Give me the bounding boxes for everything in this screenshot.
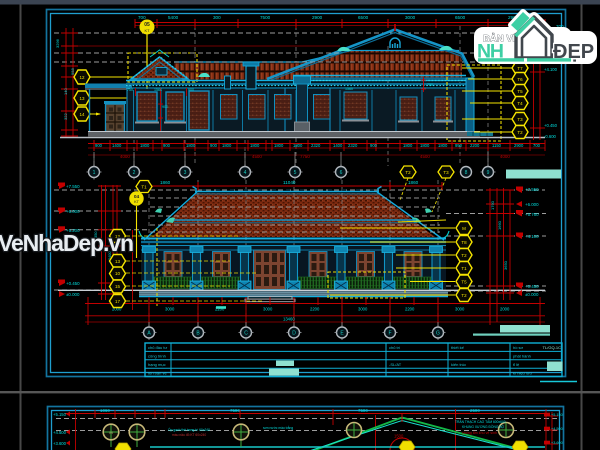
svg-text:2200: 2200 [405,307,415,312]
svg-text:1800: 1800 [403,143,413,148]
svg-text:2: 2 [133,170,136,176]
svg-text:7590: 7590 [358,408,368,413]
svg-text:1800: 1800 [293,143,303,148]
svg-text:màu nâu đỏ KT 60x240: màu nâu đỏ KT 60x240 [172,433,206,437]
svg-text:1790: 1790 [490,200,495,210]
svg-text:-0.600: -0.600 [544,134,557,139]
svg-text:chủ đầu tư: chủ đầu tư [148,345,167,350]
svg-text:15: 15 [115,284,121,289]
svg-text:9: 9 [487,170,490,176]
svg-text:11040: 11040 [283,180,296,185]
svg-text:3000: 3000 [455,307,465,312]
svg-text:2000: 2000 [500,307,510,312]
svg-text:13: 13 [115,259,121,264]
svg-text:5400: 5400 [168,15,179,20]
svg-text:1800: 1800 [274,143,284,148]
svg-text:8: 8 [465,170,468,176]
svg-text:2200: 2200 [310,307,320,312]
svg-text:700: 700 [533,143,541,148]
svg-text:+6.000: +6.000 [525,202,539,207]
svg-text:1800: 1800 [140,143,150,148]
svg-text:-SL/AT: -SL/AT [389,362,402,367]
svg-text:TRẦN THẠCH CAO TẤM 600x600: TRẦN THẠCH CAO TẤM 600x600 [455,420,506,424]
svg-text:1860: 1860 [408,180,419,185]
svg-text:±0.000: ±0.000 [66,292,80,297]
svg-text:6500: 6500 [455,15,466,20]
svg-text:3296: 3296 [55,38,60,48]
svg-text:900: 900 [188,88,194,92]
svg-text:F: F [388,331,391,337]
svg-text:T2: T2 [461,293,467,298]
svg-text:thiết kế: thiết kế [451,345,465,350]
svg-text:+3.600: +3.600 [53,441,67,446]
svg-text:1860: 1860 [160,180,171,185]
svg-text:+5.150: +5.150 [551,413,563,417]
svg-text:2590: 2590 [470,408,480,413]
svg-text:chủ trì: chủ trì [389,345,400,350]
svg-text:1400: 1400 [333,143,343,148]
svg-text:140: 140 [63,88,68,95]
svg-text:13: 13 [79,96,85,101]
svg-text:KT: KT [134,200,140,204]
svg-text:M: M [462,226,466,231]
svg-text:T5: T5 [461,280,467,285]
svg-text:T2: T2 [405,170,411,175]
svg-text:2320: 2320 [348,143,358,148]
svg-text:1800: 1800 [420,143,430,148]
svg-text:hồ sơ: hồ sơ [513,345,524,350]
svg-text:900: 900 [162,105,168,109]
svg-text:1500: 1500 [394,434,404,439]
svg-text:+0.450: +0.450 [66,281,80,286]
svg-text:KT: KT [144,28,150,33]
svg-text:10: 10 [115,271,121,276]
svg-text:T7: T7 [517,66,523,71]
svg-text:T4: T4 [517,101,523,106]
svg-text:750: 750 [427,83,433,87]
svg-text:T2: T2 [461,253,467,258]
svg-text:T3: T3 [443,170,449,175]
svg-text:+4.500: +4.500 [551,427,563,431]
svg-text:6: 6 [340,170,343,176]
svg-text:+5.150: +5.150 [53,412,67,417]
svg-text:1800: 1800 [222,143,232,148]
svg-text:T6: T6 [517,77,523,82]
svg-text:T1: T1 [141,185,147,190]
svg-text:900: 900 [163,143,171,148]
svg-text:T8: T8 [461,240,467,245]
svg-text:kiến trúc: kiến trúc [451,362,466,367]
svg-text:13460: 13460 [283,316,295,321]
svg-text:+4.100: +4.100 [544,67,558,72]
svg-text:T3: T3 [517,117,523,122]
svg-text:1800: 1800 [186,143,196,148]
svg-text:7500: 7500 [260,15,271,20]
svg-text:công trình: công trình [148,354,166,359]
svg-text:3: 3 [184,170,187,176]
svg-text:+4.500: +4.500 [53,430,67,435]
svg-text:T2: T2 [517,130,523,135]
svg-text:+0.450: +0.450 [544,123,558,128]
svg-text:3650: 3650 [503,260,508,270]
svg-text:+0.450: +0.450 [525,284,539,289]
svg-text:1150: 1150 [492,143,502,148]
svg-text:7590: 7590 [230,408,240,413]
svg-text:950: 950 [455,143,463,148]
svg-text:tỉ lệ: tỉ lệ [513,362,520,367]
svg-text:2320: 2320 [311,143,321,148]
svg-text:958: 958 [70,68,75,75]
svg-text:G: G [436,331,440,337]
svg-text:3000: 3000 [358,307,368,312]
svg-text:chống ẩm khu vệ sinh: chống ẩm khu vệ sinh [462,431,497,435]
svg-text:1660: 1660 [497,220,502,230]
svg-text:1060: 1060 [100,408,110,413]
svg-text:+5.760: +5.760 [525,212,539,217]
svg-text:M: M [109,430,112,435]
svg-text:1800: 1800 [250,143,260,148]
svg-text:sơn nước màu trắng: sơn nước màu trắng [263,425,293,430]
svg-text:1560: 1560 [154,88,162,92]
svg-text:17: 17 [115,299,121,304]
svg-text:C: C [244,331,248,337]
svg-text:VeNhaDep.vn: VeNhaDep.vn [0,230,133,256]
svg-text:14: 14 [79,112,85,117]
svg-text:1560: 1560 [345,87,353,91]
svg-text:700: 700 [138,15,146,20]
svg-text:2900: 2900 [312,15,323,20]
svg-text:Ốp gạch thẻ trang trí 60x240: Ốp gạch thẻ trang trí 60x240 [168,427,210,432]
svg-text:12: 12 [79,75,85,80]
svg-text:D: D [292,331,296,337]
svg-text:322: 322 [63,113,68,120]
svg-text:1800: 1800 [438,143,448,148]
svg-text:tên bản vẽ: tên bản vẽ [148,371,167,376]
svg-text:6500: 6500 [358,15,369,20]
svg-text:phát hành: phát hành [513,354,531,359]
svg-text:±0.000: ±0.000 [525,292,539,297]
svg-text:+7.550: +7.550 [525,187,539,192]
svg-text:T5: T5 [517,89,523,94]
svg-text:2900: 2900 [514,143,524,148]
svg-text:+4.100: +4.100 [525,234,539,239]
svg-text:T1: T1 [461,266,467,271]
svg-text:1: 1 [93,170,96,176]
svg-text:KHUNG XƯƠNG ĐỒNG BỘ: KHUNG XƯƠNG ĐỒNG BỘ [462,424,505,429]
svg-text:4: 4 [244,170,247,176]
svg-text:3000: 3000 [165,307,175,312]
svg-text:hạng mục: hạng mục [148,362,166,367]
svg-text:+3.600: +3.600 [551,441,563,445]
svg-text:+6.000: +6.000 [66,209,80,214]
svg-text:900: 900 [370,143,378,148]
svg-text:TL/GQ-1C: TL/GQ-1C [543,345,562,350]
svg-text:2200: 2200 [470,143,480,148]
svg-text:kí hiệu lưu: kí hiệu lưu [513,371,532,376]
svg-text:3000: 3000 [405,15,416,20]
svg-text:5: 5 [294,170,297,176]
svg-text:900: 900 [210,143,218,148]
svg-text:+7.550: +7.550 [66,184,80,189]
svg-text:3000: 3000 [263,307,273,312]
svg-text:300: 300 [213,15,221,20]
svg-text:750: 750 [127,88,133,92]
svg-text:900: 900 [95,143,103,148]
svg-text:1400: 1400 [112,143,122,148]
